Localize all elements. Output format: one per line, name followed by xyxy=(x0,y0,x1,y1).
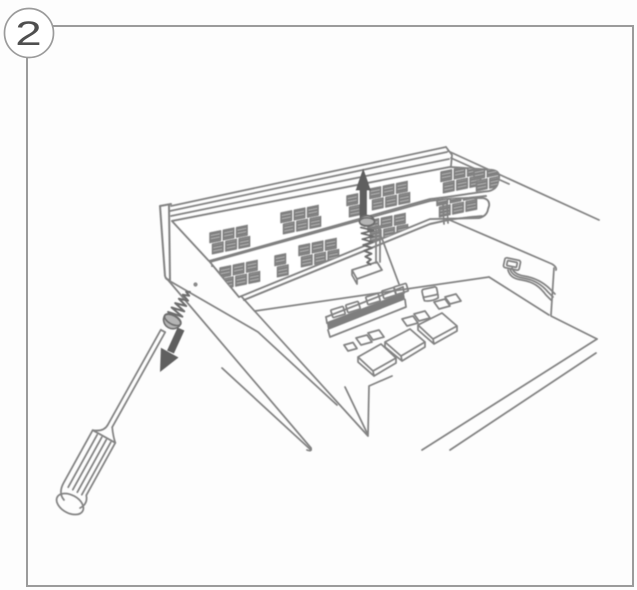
svg-text:2: 2 xyxy=(15,15,41,53)
